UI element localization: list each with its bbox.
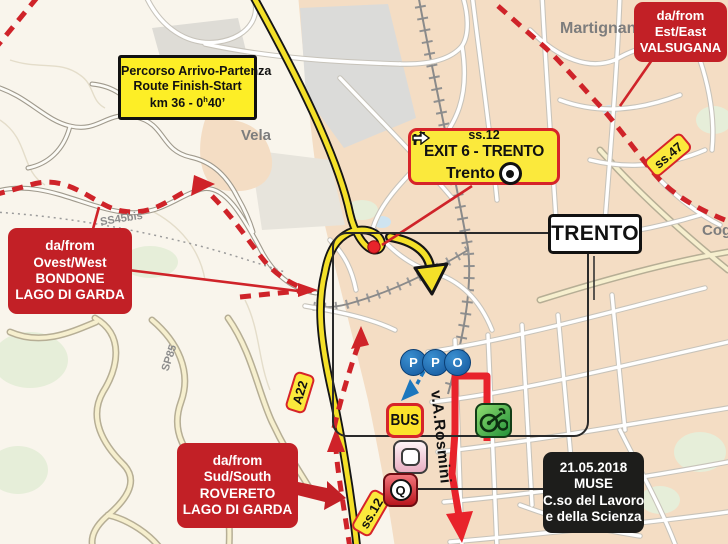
sign-trento: TRENTO [548,214,642,254]
sign-percorso: Percorso Arrivo-Partenza Route Finish-St… [118,55,257,120]
muse-venue: MUSE [543,476,644,492]
sign-exit: ss.12 EXIT 6 - TRENTO Trento [408,128,560,185]
tv-compound-icon [393,440,428,474]
exit-destination: EXIT 6 - TRENTO [424,143,544,162]
bondone-line1: da/from [8,238,132,254]
exit-road: ss.12 [411,128,557,143]
bondone-line4: LAGO DI GARDA [8,287,132,303]
label-vela: Vela [241,127,271,144]
rovereto-line4: LAGO DI GARDA [177,502,298,518]
rovereto-line3: ROVERETO [177,486,298,502]
quartier-tappa-icon: Q [383,473,418,507]
bondone-line3: BONDONE [8,271,132,287]
exit-direction: Trento [446,164,495,184]
rovereto-line2: Sud/South [177,469,298,485]
race-route [446,376,487,543]
ppo-icon: P P O [400,349,471,376]
percorso-line3: km 36 - 0h40’ [121,95,254,111]
finish-target-icon [499,162,522,185]
exit-point-dot [368,241,380,253]
tv-compound-inner [401,448,420,466]
percorso-line1: Percorso Arrivo-Partenza [121,64,254,79]
race-map: Martignano Vela Cognola SP85 SS45bis v.A… [0,0,728,544]
rovereto-line1: da/from [177,453,298,469]
valsugana-line1: da/from [634,8,727,24]
inset-rectangle [333,233,588,436]
direction-arrow-icon [411,131,431,145]
bicycle-glyph [477,405,508,433]
bus-icon: BUS [386,403,424,438]
muse-date: 21.05.2018 [543,460,644,476]
valsugana-line2: Est/East [634,24,727,40]
exit-direction-arrow [390,237,447,294]
trento-label: TRENTO [551,221,639,247]
valsugana-line3: VALSUGANA [634,40,727,56]
bondone-line2: Ovest/West [8,255,132,271]
bike-start-icon [475,403,512,438]
route-arrowheads [191,175,369,452]
muse-address2: e della Scienza [543,509,644,525]
ppo-circle-3: O [444,349,471,376]
percorso-line2: Route Finish-Start [121,79,254,94]
label-cognola: Cognola [702,222,728,239]
sign-rovereto: da/from Sud/South ROVERETO LAGO DI GARDA [177,443,298,528]
muse-address1: C.so del Lavoro [543,493,644,509]
sign-muse: 21.05.2018 MUSE C.so del Lavoro e della … [543,452,644,533]
sign-bondone: da/from Ovest/West BONDONE LAGO DI GARDA [8,228,132,314]
sign-valsugana: da/from Est/East VALSUGANA [634,2,727,62]
